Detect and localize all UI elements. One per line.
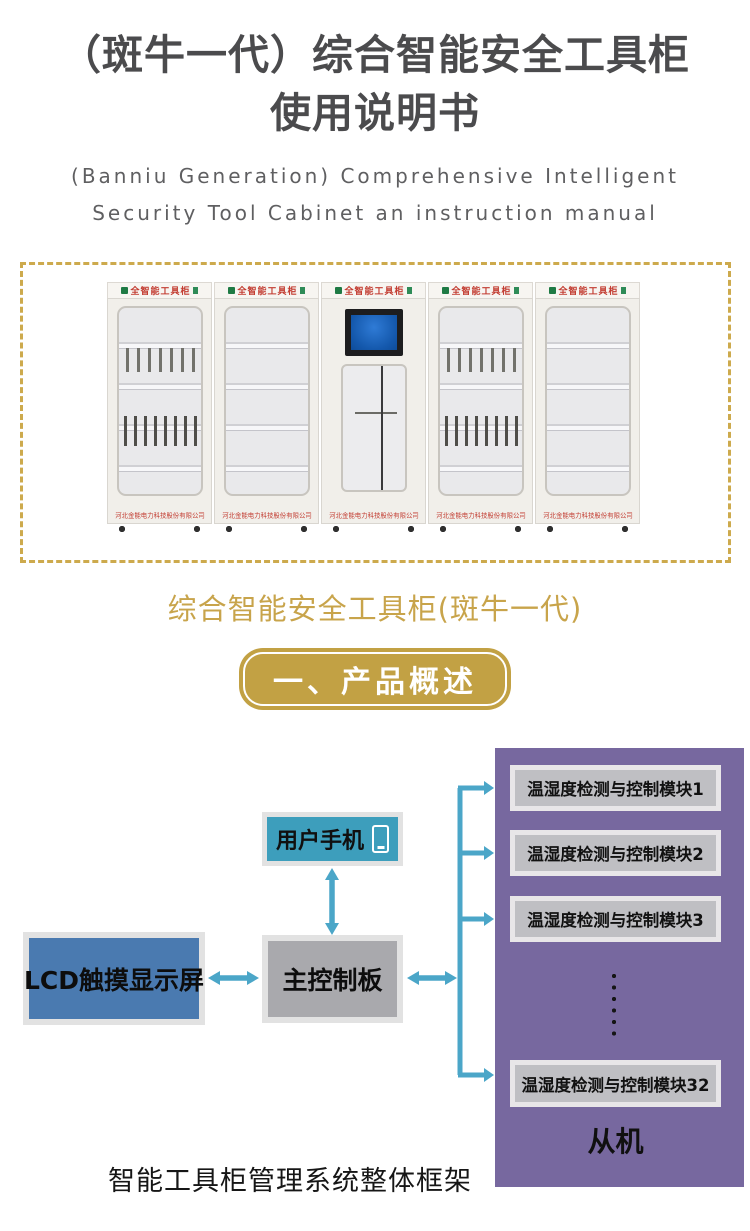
cabinet-header: 全智能工具柜 — [428, 282, 533, 298]
smartphone-icon — [372, 825, 389, 853]
caster-wheels — [214, 524, 319, 537]
small-green-icon — [407, 287, 412, 294]
module-box-2-label: 温湿度检测与控制模块2 — [515, 835, 716, 871]
cabinet-body: 河北金能电力科技股份有限公司 — [321, 298, 426, 524]
arrow-lcd-mainboard-right-head — [247, 971, 259, 985]
gallery-caption: 综合智能安全工具柜(斑牛一代) — [0, 586, 750, 628]
node-user-phone: 用户手机 — [262, 812, 403, 866]
cabinet-header-label: 全智能工具柜 — [130, 284, 190, 297]
arrow-mainboard-slaves-left-head — [407, 971, 419, 985]
ellipsis-dots — [611, 973, 617, 1039]
cabinet-touchscreen — [345, 309, 403, 356]
cabinet-2-shelves: 全智能工具柜 河北金能电力科技股份有限公司 — [214, 282, 319, 537]
cabinet-5-shelves: 全智能工具柜 河北金能电力科技股份有限公司 — [535, 282, 640, 537]
page-subtitle-line1: (Banniu Generation) Comprehensive Intell… — [0, 158, 750, 195]
cabinet-glass-door — [117, 306, 203, 496]
brand-logo-icon — [442, 287, 449, 294]
branch-arrowhead-3 — [484, 912, 494, 926]
node-mainboard: 主控制板 — [262, 935, 403, 1023]
cabinet-header-label: 全智能工具柜 — [558, 284, 618, 297]
manual-page: （斑牛一代）综合智能安全工具柜 使用说明书 (Banniu Generation… — [0, 0, 750, 1231]
cabinet-footer-label: 河北金能电力科技股份有限公司 — [436, 511, 526, 520]
module-box-3: 温湿度检测与控制模块3 — [510, 896, 721, 942]
cabinet-4-tools: 全智能工具柜 河北金能电力科技股份有限公司 — [428, 282, 533, 537]
module-box-1-label: 温湿度检测与控制模块1 — [515, 770, 716, 806]
small-green-icon — [193, 287, 198, 294]
brand-logo-icon — [228, 287, 235, 294]
cabinet-glass-door — [438, 306, 524, 496]
cabinet-body: 河北金能电力科技股份有限公司 — [107, 298, 212, 524]
section-badge-label: 一、产品概述 — [273, 657, 477, 701]
caster-wheels — [107, 524, 212, 537]
cabinet-header-label: 全智能工具柜 — [344, 284, 404, 297]
branch-arrowhead-4 — [484, 1068, 494, 1082]
cabinet-header-label: 全智能工具柜 — [451, 284, 511, 297]
page-title-line2: 使用说明书 — [0, 84, 750, 142]
brand-logo-icon — [549, 287, 556, 294]
cabinet-glass-door — [545, 306, 631, 496]
small-green-icon — [300, 287, 305, 294]
section-badge: 一、产品概述 — [239, 648, 511, 710]
cabinet-footer-label: 河北金能电力科技股份有限公司 — [222, 511, 312, 520]
cabinet-header: 全智能工具柜 — [214, 282, 319, 298]
cabinet-row: 全智能工具柜 河北金能电力科技股份有限公司 全智能工具柜 河北金能电力科技 — [107, 282, 640, 537]
arrow-mainboard-slaves-right-head — [445, 971, 457, 985]
cabinet-glass-door — [341, 364, 407, 492]
small-green-icon — [621, 287, 626, 294]
branch-arrowhead-2 — [484, 846, 494, 860]
arrow-phone-mainboard-top-head — [325, 868, 339, 880]
cabinet-footer-label: 河北金能电力科技股份有限公司 — [115, 511, 205, 520]
cabinet-header: 全智能工具柜 — [321, 282, 426, 298]
node-user-phone-label: 用户手机 — [276, 823, 364, 855]
node-mainboard-box: 主控制板 — [268, 941, 397, 1017]
section-badge-outline: 一、产品概述 — [243, 652, 507, 706]
node-lcd-display-label: LCD触摸显示屏 — [24, 961, 204, 997]
slave-panel: 温湿度检测与控制模块1 温湿度检测与控制模块2 温湿度检测与控制模块3 温湿度检… — [495, 748, 744, 1187]
module-box-1: 温湿度检测与控制模块1 — [510, 765, 721, 811]
cabinet-3-screen: 全智能工具柜 河北金能电力科技股份有限公司 — [321, 282, 426, 537]
brand-logo-icon — [121, 287, 128, 294]
small-green-icon — [514, 287, 519, 294]
node-mainboard-label: 主控制板 — [282, 961, 382, 997]
cabinet-body: 河北金能电力科技股份有限公司 — [428, 298, 533, 524]
node-user-phone-box: 用户手机 — [267, 817, 398, 861]
page-title-line1: （斑牛一代）综合智能安全工具柜 — [0, 26, 750, 84]
slave-panel-label: 从机 — [510, 1120, 721, 1160]
caster-wheels — [428, 524, 533, 537]
page-title: （斑牛一代）综合智能安全工具柜 使用说明书 — [0, 26, 750, 142]
cabinet-touchscreen-display — [351, 315, 397, 350]
cabinet-body: 河北金能电力科技股份有限公司 — [214, 298, 319, 524]
node-lcd-display: LCD触摸显示屏 — [23, 932, 205, 1025]
arrow-phone-mainboard-bottom-head — [325, 923, 339, 935]
module-box-32: 温湿度检测与控制模块32 — [510, 1060, 721, 1107]
smartphone-icon-home-bar — [377, 846, 384, 849]
cabinet-header: 全智能工具柜 — [535, 282, 640, 298]
brand-logo-icon — [335, 287, 342, 294]
page-subtitle: (Banniu Generation) Comprehensive Intell… — [0, 158, 750, 232]
page-subtitle-line2: Security Tool Cabinet an instruction man… — [0, 195, 750, 232]
caster-wheels — [321, 524, 426, 537]
module-box-32-label: 温湿度检测与控制模块32 — [515, 1065, 716, 1102]
cabinet-body: 河北金能电力科技股份有限公司 — [535, 298, 640, 524]
caster-wheels — [535, 524, 640, 537]
cabinet-footer-label: 河北金能电力科技股份有限公司 — [329, 511, 419, 520]
cabinet-header-label: 全智能工具柜 — [237, 284, 297, 297]
cabinet-glass-door — [224, 306, 310, 496]
module-box-3-label: 温湿度检测与控制模块3 — [515, 901, 716, 937]
cabinet-1-tools: 全智能工具柜 河北金能电力科技股份有限公司 — [107, 282, 212, 537]
node-lcd-display-box: LCD触摸显示屏 — [29, 938, 199, 1019]
cabinet-footer-label: 河北金能电力科技股份有限公司 — [543, 511, 633, 520]
module-box-2: 温湿度检测与控制模块2 — [510, 830, 721, 876]
arrow-lcd-mainboard-left-head — [208, 971, 220, 985]
product-photo-frame: 全智能工具柜 河北金能电力科技股份有限公司 全智能工具柜 河北金能电力科技 — [20, 262, 731, 563]
diagram-caption: 智能工具柜管理系统整体框架 — [0, 1159, 580, 1198]
cabinet-header: 全智能工具柜 — [107, 282, 212, 298]
branch-arrowhead-1 — [484, 781, 494, 795]
